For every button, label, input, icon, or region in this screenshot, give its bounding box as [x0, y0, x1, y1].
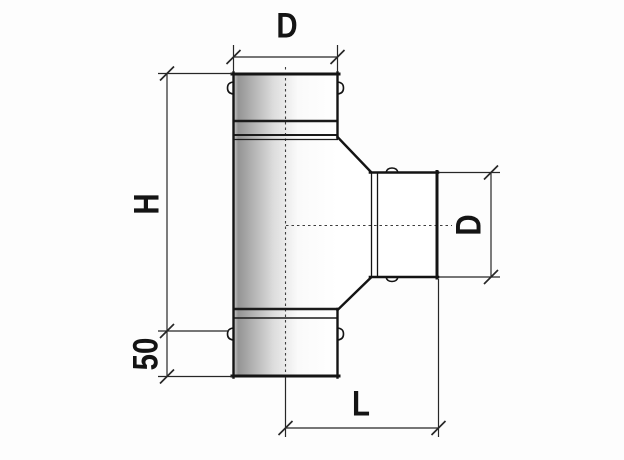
label-top-diameter: D	[276, 9, 297, 44]
label-height: H	[130, 193, 165, 214]
dimension-height-and-bottom	[158, 67, 232, 384]
technical-drawing-canvas: D H D 50 L	[0, 0, 624, 460]
label-branch-diameter: D	[452, 214, 487, 235]
vertical-pipe-body	[234, 74, 337, 376]
tee-fitting-drawing	[0, 0, 624, 460]
branch-socket-body	[371, 173, 437, 276]
label-branch-length: L	[352, 387, 370, 422]
label-bottom-section: 50	[129, 338, 164, 371]
